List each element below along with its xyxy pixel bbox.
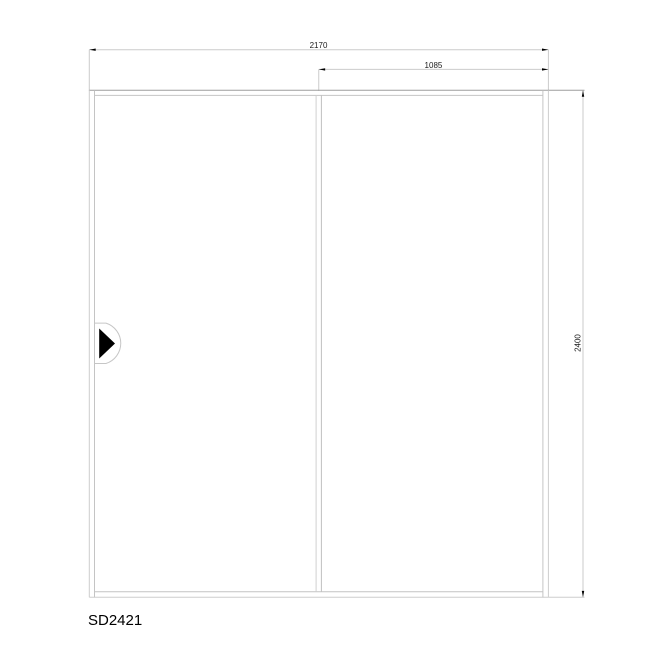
- svg-text:2170: 2170: [310, 41, 328, 50]
- svg-text:2400: 2400: [574, 334, 583, 352]
- svg-text:1085: 1085: [425, 61, 443, 70]
- svg-text:SD2421: SD2421: [88, 612, 142, 629]
